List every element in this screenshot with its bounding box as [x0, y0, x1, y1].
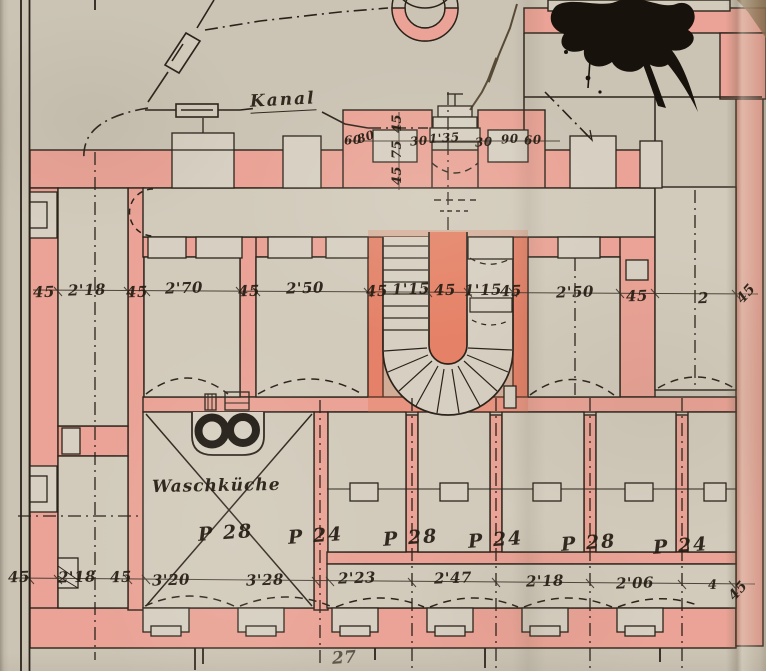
well-ring — [392, 8, 458, 41]
ink-blot — [551, 0, 698, 112]
paper-crack — [470, 4, 517, 110]
floor-plan-drawing — [0, 0, 766, 671]
spiral-staircase — [368, 230, 528, 415]
floorplan-scan: Kanal Waschküche 27 60 80 30 1'35 30 90 … — [0, 0, 766, 671]
